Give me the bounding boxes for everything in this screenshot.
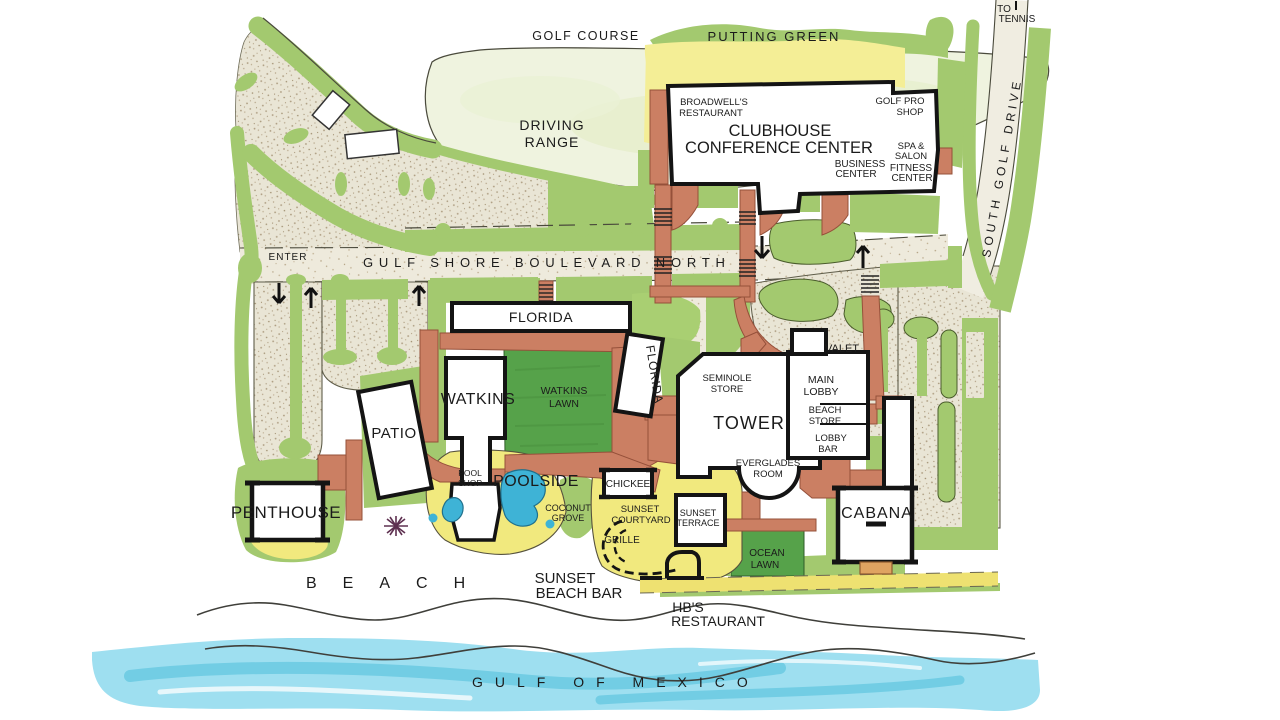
svg-text:LAWN: LAWN: [549, 398, 579, 410]
svg-text:MAIN: MAIN: [808, 374, 834, 386]
svg-text:WATKINS: WATKINS: [441, 391, 516, 408]
svg-text:VALET: VALET: [825, 343, 859, 355]
svg-text:POOL: POOL: [458, 468, 482, 478]
svg-text:PATIO: PATIO: [371, 425, 416, 442]
svg-text:CHICKEE: CHICKEE: [606, 479, 651, 490]
svg-text:LOBBY: LOBBY: [815, 433, 847, 444]
svg-text:CONFERENCE CENTER: CONFERENCE CENTER: [685, 139, 873, 157]
svg-text:GULF SHORE BOULEVARD NORTH: GULF SHORE BOULEVARD NORTH: [363, 255, 731, 270]
svg-text:COCONUT: COCONUT: [545, 503, 591, 513]
svg-text:CENTER: CENTER: [835, 169, 876, 180]
svg-text:TOWER: TOWER: [713, 413, 785, 433]
svg-text:CABANA: CABANA: [841, 505, 913, 522]
svg-text:FLORIDA: FLORIDA: [509, 309, 573, 325]
svg-text:STORE: STORE: [711, 384, 744, 395]
svg-text:GRILLE: GRILLE: [604, 535, 640, 546]
svg-text:EVERGLADES: EVERGLADES: [736, 458, 800, 469]
svg-text:POOLSIDE: POOLSIDE: [493, 473, 579, 490]
svg-text:BEACH: BEACH: [809, 405, 842, 416]
svg-text:COURTYARD: COURTYARD: [611, 515, 670, 526]
svg-text:OCEAN: OCEAN: [749, 548, 785, 559]
svg-text:GOLF PRO: GOLF PRO: [875, 96, 924, 107]
svg-text:RESTAURANT: RESTAURANT: [679, 108, 743, 119]
svg-text:CLUBHOUSE: CLUBHOUSE: [729, 122, 832, 140]
svg-text:BROADWELL'S: BROADWELL'S: [680, 97, 748, 108]
svg-text:SEMINOLE: SEMINOLE: [702, 373, 751, 384]
svg-text:PUTTING GREEN: PUTTING GREEN: [708, 29, 841, 44]
svg-text:STORE: STORE: [809, 416, 842, 427]
svg-text:GOLF COURSE: GOLF COURSE: [532, 29, 640, 43]
svg-text:ROOM: ROOM: [753, 469, 783, 480]
svg-text:DRIVING: DRIVING: [519, 117, 584, 133]
svg-text:TERRACE: TERRACE: [676, 518, 719, 528]
svg-text:BAR: BAR: [818, 444, 838, 455]
svg-text:SHOP: SHOP: [458, 478, 482, 488]
svg-text:BEACH: BEACH: [306, 575, 491, 592]
svg-text:GULF OF MEXICO: GULF OF MEXICO: [472, 674, 760, 690]
svg-text:RESTAURANT: RESTAURANT: [671, 613, 765, 629]
svg-text:TENNIS: TENNIS: [999, 14, 1036, 25]
svg-text:RANGE: RANGE: [525, 134, 580, 150]
svg-text:LOBBY: LOBBY: [803, 386, 838, 398]
svg-text:LAWN: LAWN: [751, 560, 780, 571]
svg-text:GROVE: GROVE: [552, 513, 585, 523]
svg-text:BEACH BAR: BEACH BAR: [536, 585, 623, 602]
svg-text:SHOP: SHOP: [897, 107, 924, 118]
svg-text:SUNSET: SUNSET: [621, 504, 660, 515]
svg-text:PENTHOUSE: PENTHOUSE: [231, 503, 341, 522]
svg-text:WATKINS: WATKINS: [541, 385, 588, 397]
svg-text:CENTER: CENTER: [891, 173, 932, 184]
svg-text:ENTER: ENTER: [269, 252, 308, 263]
svg-text:SUNSET: SUNSET: [680, 508, 717, 518]
svg-text:SALON: SALON: [895, 151, 927, 162]
